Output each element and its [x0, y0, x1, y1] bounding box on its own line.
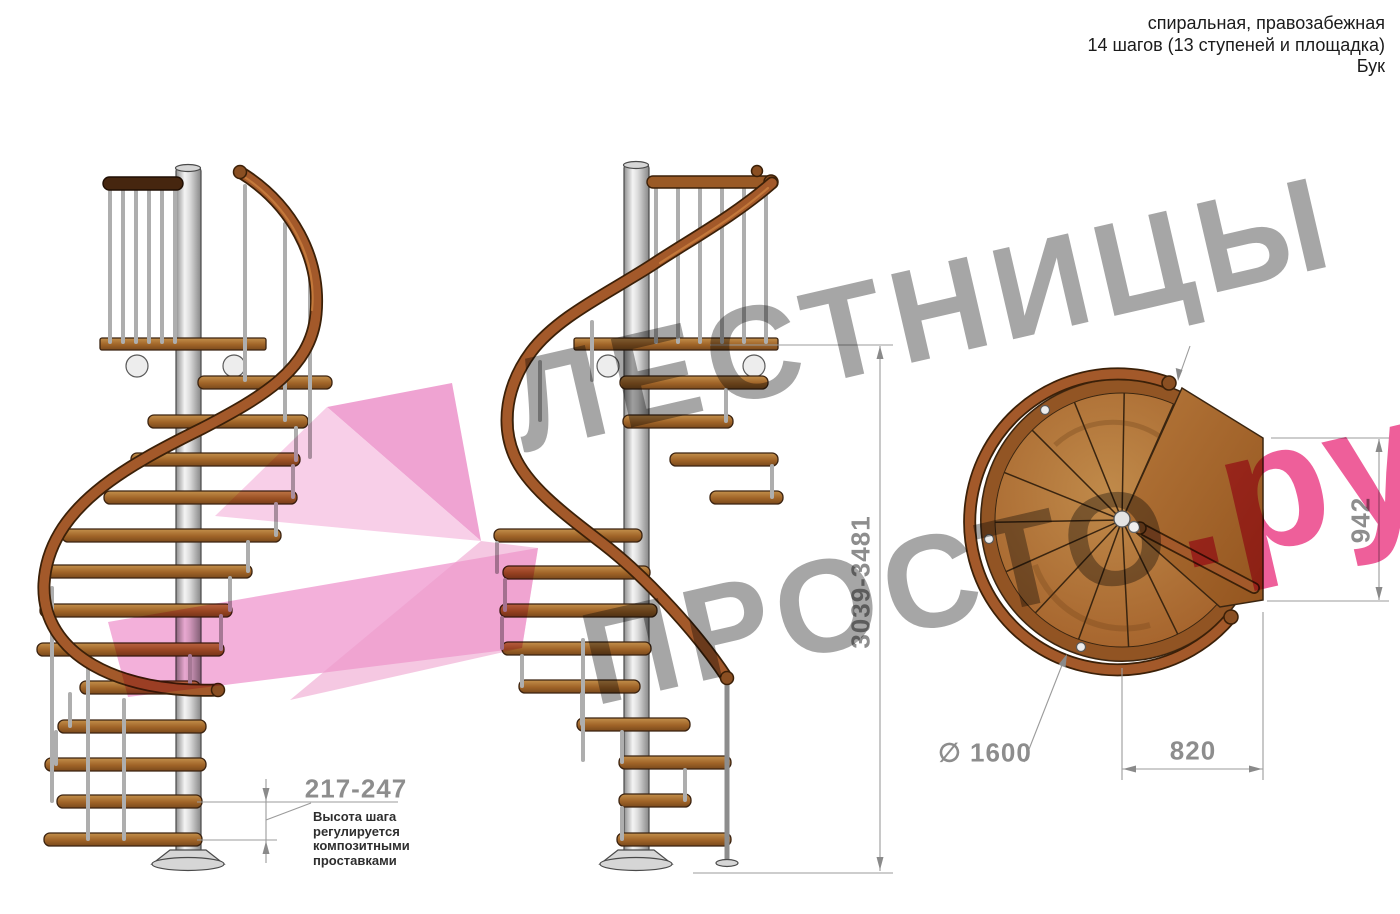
spec-header: спиральная, правозабежная 14 шагов (13 с… — [1087, 13, 1385, 78]
step-height-note: Высота шага регулируется композитными пр… — [313, 810, 458, 868]
dim-landing-depth: 942 — [1346, 497, 1377, 543]
spiral-staircase-spec-sheet: { "header": { "line1": "спиральная, прав… — [0, 0, 1400, 914]
spec-line-steps: 14 шагов (13 ступеней и площадка) — [1087, 35, 1385, 57]
spec-line-material: Бук — [1087, 56, 1385, 78]
dim-step-height: 217-247 — [305, 774, 407, 805]
dim-total-height: 3039-3481 — [846, 515, 877, 648]
dim-landing-width: 820 — [1170, 736, 1216, 767]
text-layer: спиральная, правозабежная 14 шагов (13 с… — [0, 0, 1400, 914]
spec-line-type: спиральная, правозабежная — [1087, 13, 1385, 35]
dim-diameter: ∅ 1600 — [938, 738, 1032, 769]
